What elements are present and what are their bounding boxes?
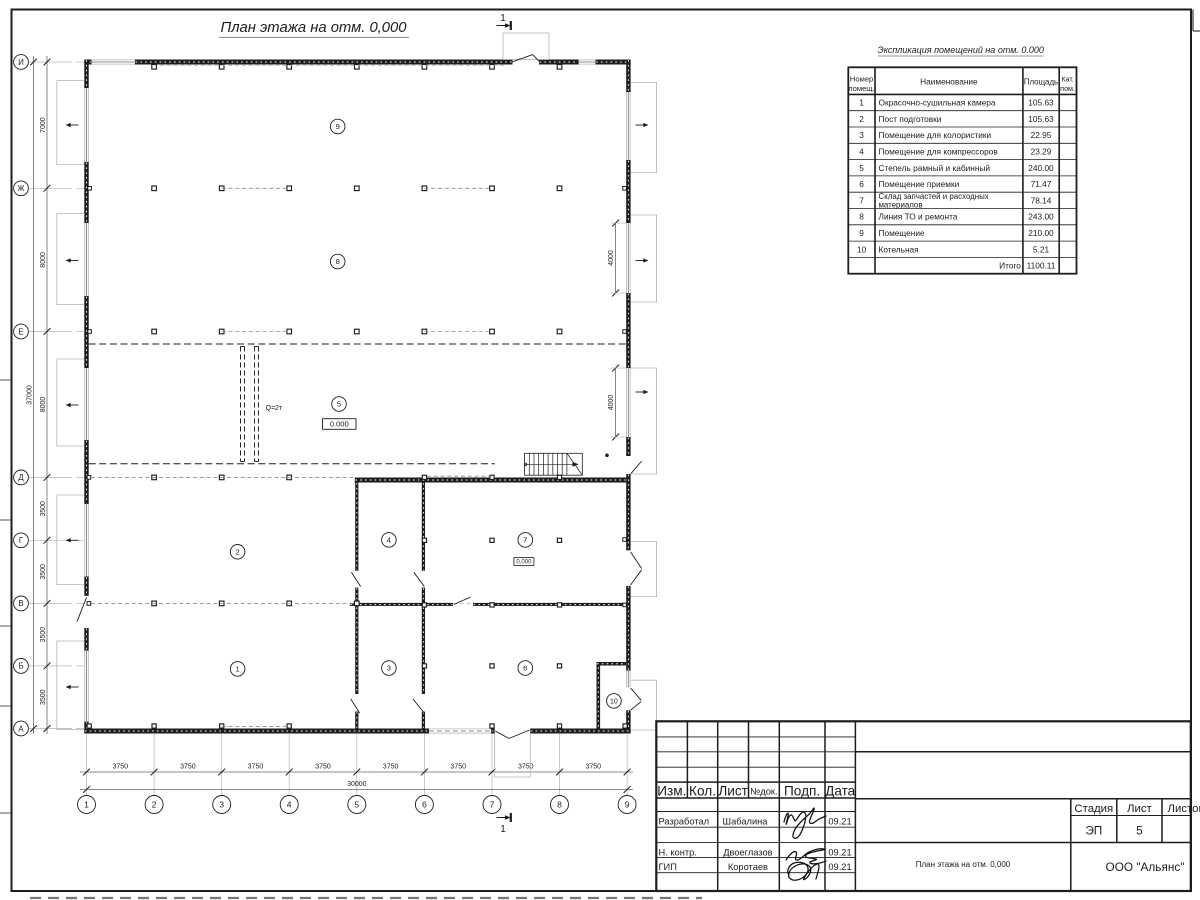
- svg-text:1100.11: 1100.11: [1027, 261, 1056, 271]
- svg-text:Наименование: Наименование: [920, 76, 978, 86]
- svg-text:1: 1: [500, 13, 506, 24]
- svg-text:Площадь: Площадь: [1024, 77, 1058, 86]
- svg-text:09.21: 09.21: [828, 862, 851, 872]
- svg-text:7: 7: [523, 536, 527, 545]
- svg-text:9: 9: [625, 800, 630, 810]
- svg-text:3: 3: [387, 664, 391, 673]
- svg-text:5: 5: [337, 400, 341, 409]
- svg-text:2: 2: [859, 114, 864, 124]
- svg-text:09.21: 09.21: [828, 848, 851, 858]
- svg-text:8: 8: [336, 257, 340, 266]
- svg-text:0.000: 0.000: [516, 560, 532, 566]
- svg-text:Стадия: Стадия: [1074, 803, 1113, 815]
- svg-text:4000: 4000: [608, 395, 615, 411]
- svg-text:Котельная: Котельная: [879, 244, 919, 254]
- svg-text:105.63: 105.63: [1028, 98, 1054, 108]
- svg-text:Итого: Итого: [999, 261, 1021, 271]
- svg-text:Лист: Лист: [1127, 803, 1153, 815]
- svg-text:6: 6: [859, 179, 864, 189]
- svg-text:Ж: Ж: [17, 184, 25, 193]
- svg-text:Изм.: Изм.: [657, 783, 686, 798]
- svg-text:3750: 3750: [180, 764, 196, 771]
- svg-text:7: 7: [859, 195, 864, 205]
- svg-text:105.63: 105.63: [1028, 114, 1054, 124]
- svg-text:Коротаев: Коротаев: [728, 862, 768, 872]
- svg-text:Экспликация помещений на отм.: Экспликация помещений на отм. 0.000: [877, 45, 1043, 55]
- svg-text:5: 5: [354, 800, 359, 810]
- svg-text:Дата: Дата: [825, 783, 856, 798]
- svg-text:Помещение: Помещение: [879, 228, 925, 238]
- svg-text:210.00: 210.00: [1028, 228, 1054, 238]
- svg-text:3750: 3750: [383, 764, 399, 771]
- svg-text:3500: 3500: [40, 501, 47, 517]
- svg-text:Е: Е: [18, 327, 23, 336]
- svg-text:В: В: [18, 599, 23, 608]
- svg-text:Степель рамный и кабинный: Степель рамный и кабинный: [879, 163, 991, 173]
- svg-text:3500: 3500: [40, 627, 47, 643]
- svg-text:Q=2т: Q=2т: [266, 405, 283, 412]
- svg-text:7000: 7000: [40, 117, 47, 133]
- svg-text:План этажа на отм. 0,000: План этажа на отм. 0,000: [220, 20, 407, 36]
- svg-text:А: А: [18, 724, 24, 733]
- svg-text:3750: 3750: [518, 764, 534, 771]
- svg-text:4: 4: [859, 146, 864, 156]
- svg-text:3750: 3750: [113, 764, 129, 771]
- svg-text:Разработал: Разработал: [659, 817, 710, 827]
- svg-text:3: 3: [219, 800, 224, 810]
- svg-text:Кат.: Кат.: [1061, 75, 1074, 84]
- svg-text:6: 6: [422, 800, 427, 810]
- svg-text:2: 2: [152, 800, 157, 810]
- svg-text:23.29: 23.29: [1031, 146, 1052, 156]
- svg-text:10: 10: [610, 699, 618, 706]
- svg-text:37000: 37000: [27, 385, 34, 405]
- svg-text:78.14: 78.14: [1031, 195, 1052, 205]
- svg-text:Шабалина: Шабалина: [723, 817, 769, 827]
- svg-text:1: 1: [859, 98, 864, 108]
- svg-text:8000: 8000: [40, 252, 47, 268]
- svg-text:0.000: 0.000: [330, 420, 349, 429]
- svg-text:1: 1: [235, 665, 239, 674]
- svg-text:ГИП: ГИП: [659, 862, 677, 872]
- svg-text:Помещение для колористики: Помещение для колористики: [879, 130, 992, 140]
- svg-text:Помещение приемки: Помещение приемки: [879, 179, 960, 189]
- svg-text:Пост подготовки: Пост подготовки: [879, 114, 942, 124]
- svg-text:22.95: 22.95: [1031, 130, 1052, 140]
- svg-text:6: 6: [523, 664, 527, 673]
- svg-text:1: 1: [500, 824, 506, 835]
- svg-text:10: 10: [857, 244, 867, 254]
- svg-text:3500: 3500: [40, 564, 47, 580]
- svg-text:8: 8: [557, 800, 562, 810]
- svg-text:Листов: Листов: [1167, 803, 1200, 815]
- svg-text:Помещение для компрессоров: Помещение для компрессоров: [879, 146, 999, 156]
- svg-text:9: 9: [336, 122, 340, 131]
- svg-text:243.00: 243.00: [1028, 212, 1054, 222]
- svg-text:5: 5: [859, 163, 864, 173]
- svg-text:пом.: пом.: [1060, 84, 1075, 93]
- svg-text:План этажа на отм. 0,000: План этажа на отм. 0,000: [916, 860, 1011, 869]
- svg-text:№док.: №док.: [750, 786, 777, 797]
- svg-text:4: 4: [387, 536, 391, 545]
- svg-text:И: И: [18, 58, 24, 67]
- svg-text:3750: 3750: [315, 764, 331, 771]
- svg-text:ООО "Альянс": ООО "Альянс": [1106, 860, 1185, 874]
- svg-text:Подп.: Подп.: [784, 783, 820, 798]
- svg-text:5.21: 5.21: [1033, 244, 1050, 254]
- svg-text:Кол.: Кол.: [689, 783, 716, 798]
- svg-text:3500: 3500: [40, 689, 47, 705]
- svg-text:Линия ТО и ремонта: Линия ТО и ремонта: [879, 212, 958, 222]
- svg-text:3750: 3750: [248, 764, 264, 771]
- svg-text:помещ.: помещ.: [849, 84, 875, 93]
- svg-text:3: 3: [859, 130, 864, 140]
- svg-text:3750: 3750: [450, 764, 466, 771]
- svg-text:5: 5: [1136, 824, 1143, 838]
- svg-text:2: 2: [235, 547, 239, 556]
- svg-text:09.21: 09.21: [828, 817, 851, 827]
- svg-text:8000: 8000: [40, 397, 47, 413]
- svg-text:71.47: 71.47: [1031, 179, 1052, 189]
- svg-text:ЭП: ЭП: [1085, 824, 1102, 838]
- svg-text:Номер: Номер: [850, 75, 873, 84]
- svg-text:1: 1: [84, 800, 89, 810]
- svg-text:Д: Д: [18, 473, 24, 482]
- svg-text:30000: 30000: [347, 781, 367, 788]
- svg-text:Лист: Лист: [718, 783, 748, 798]
- svg-text:3750: 3750: [586, 764, 602, 771]
- svg-text:4000: 4000: [608, 250, 615, 266]
- svg-text:Н. контр.: Н. контр.: [659, 848, 697, 858]
- svg-text:7: 7: [490, 800, 495, 810]
- svg-text:9: 9: [859, 228, 864, 238]
- svg-text:Двоеглазов: Двоеглазов: [723, 848, 772, 858]
- svg-text:8: 8: [859, 212, 864, 222]
- svg-text:материалов: материалов: [879, 201, 923, 210]
- svg-text:240.00: 240.00: [1028, 163, 1054, 173]
- svg-text:4: 4: [287, 800, 292, 810]
- svg-text:Окрасочно-сушильная камера: Окрасочно-сушильная камера: [879, 98, 996, 108]
- svg-text:Б: Б: [18, 662, 23, 671]
